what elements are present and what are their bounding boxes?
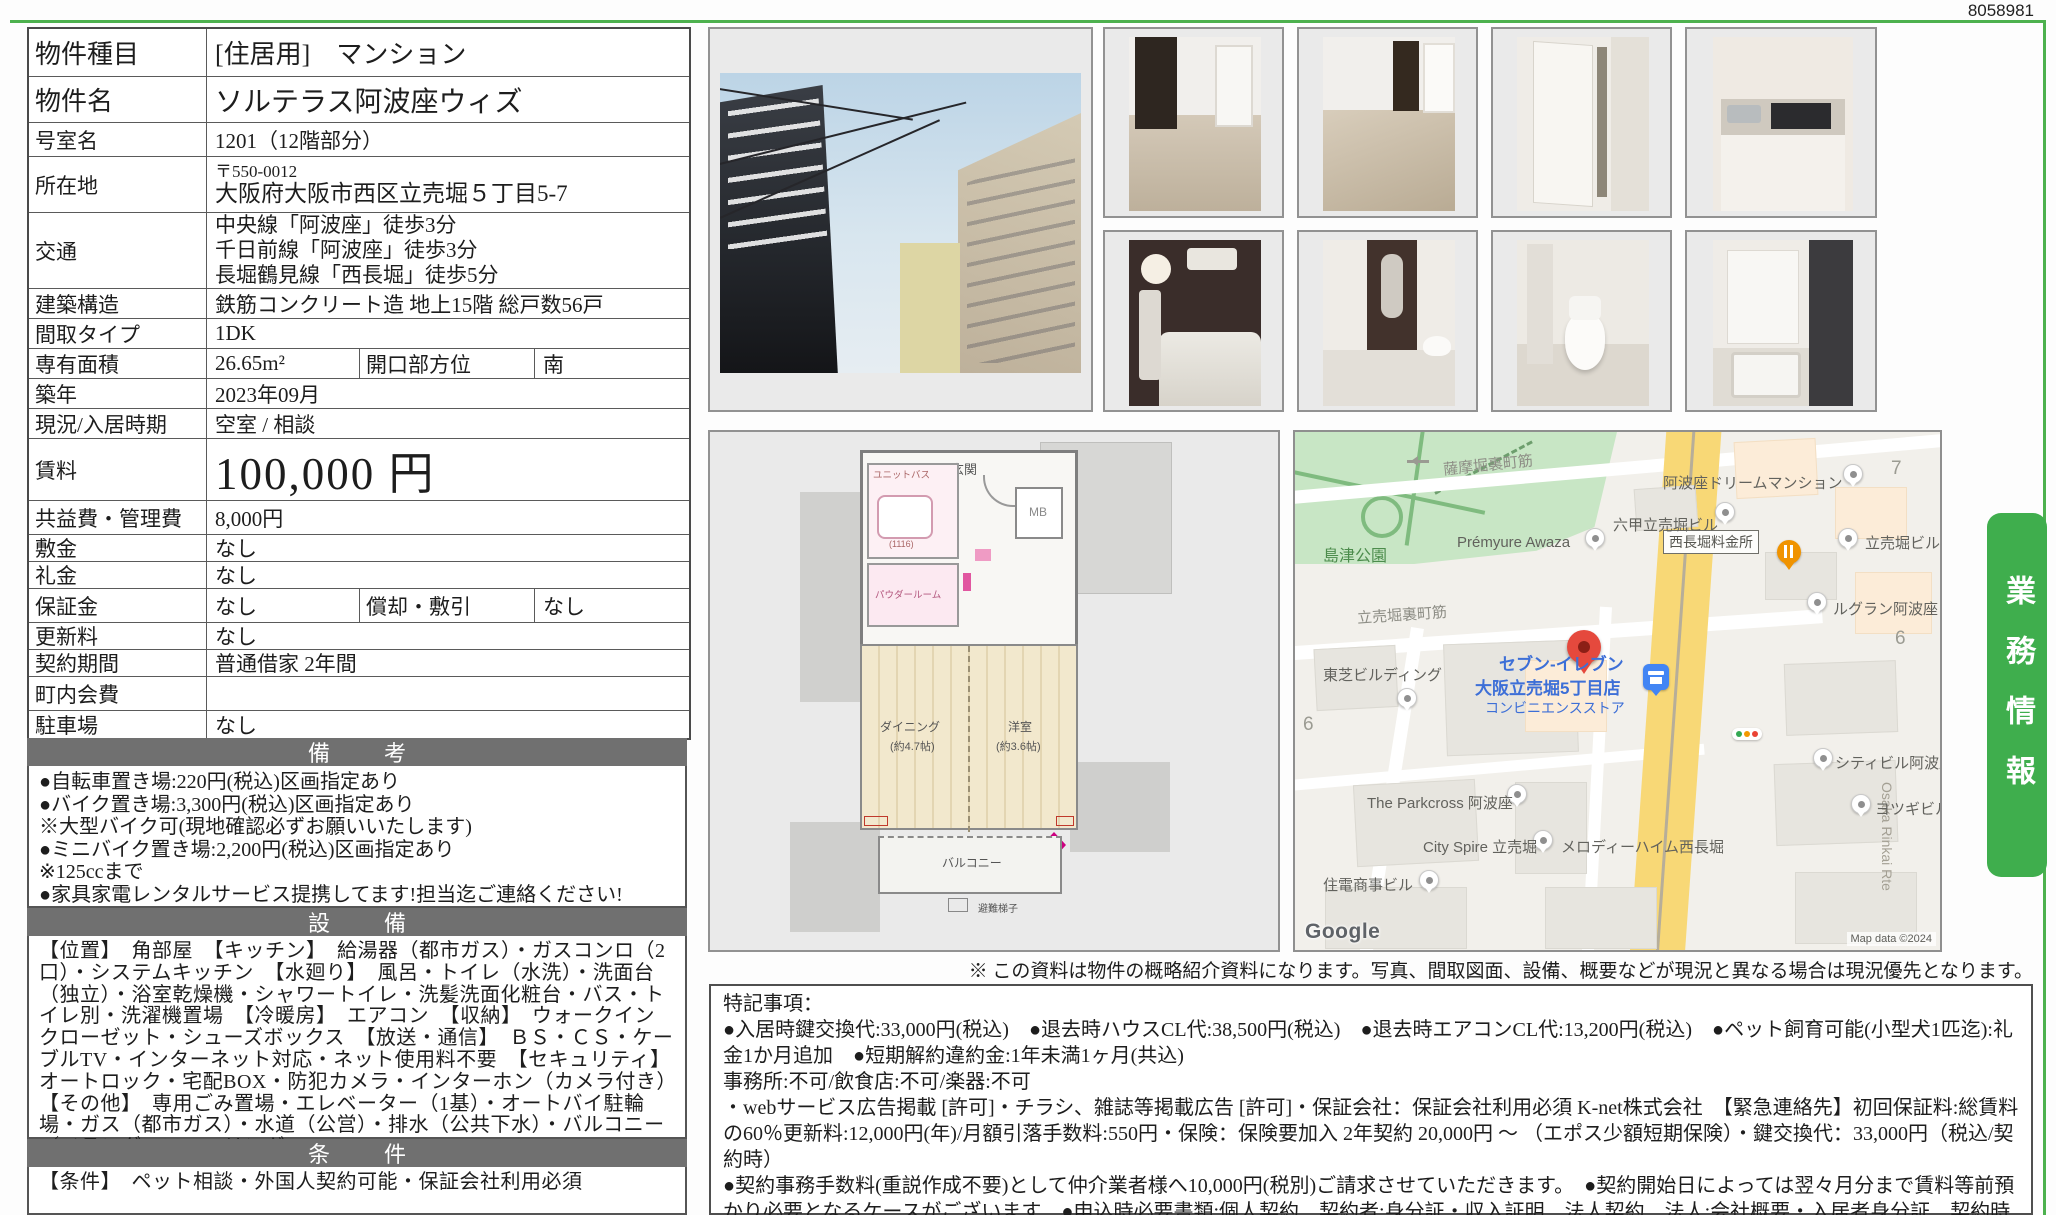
traffic-light-green <box>1736 731 1742 737</box>
park-circle <box>1361 496 1403 538</box>
row-value: 8,000円 <box>207 501 689 534</box>
row-label: 契約期間 <box>29 650 207 676</box>
poi-label: 住電商事ビル <box>1323 874 1413 895</box>
traffic-light-icon <box>1732 728 1762 740</box>
interior-photo-washroom <box>1297 230 1478 412</box>
row-value: 1201（12階部分） <box>207 123 689 156</box>
table-row: 共益費・管理費 8,000円 <box>29 501 689 535</box>
poi-pin-icon <box>1851 794 1871 814</box>
special-notes-paragraph: ・webサービス広告掲載 [許可]・チラシ、雑誌等掲載広告 [許可]・保証会社：… <box>723 1095 2019 1173</box>
dark-doorway <box>1393 41 1419 111</box>
poi-label: 立売堀ビル <box>1865 532 1940 553</box>
row-label: 現況/入居時期 <box>29 409 207 438</box>
special-notes-title: 特記事項： <box>723 991 2019 1017</box>
row-value: なし <box>207 535 689 561</box>
tab-business-info[interactable]: 業務情報 <box>1987 513 2047 877</box>
table-row: 間取タイプ 1DK <box>29 319 689 349</box>
poi-pin-icon <box>1838 528 1858 548</box>
interior-photo-toilet <box>1491 230 1672 412</box>
marker-box <box>864 816 888 826</box>
row-label: 町内会費 <box>29 677 207 710</box>
row-label: 建築構造 <box>29 289 207 318</box>
table-row: 所在地 〒550-0012 大阪府大阪市西区立売堀５丁目5-7 <box>29 157 689 213</box>
property-sheet: 8058981 業務情報 物件種目 [住居用] マンション 物件名 ソルテラス阿… <box>0 0 2056 1215</box>
table-row: 物件種目 [住居用] マンション <box>29 29 689 77</box>
unit-bath: ユニットバス (1116) <box>867 463 959 559</box>
dark-corner <box>1809 240 1853 406</box>
row-value: 空室 / 相談 <box>207 409 689 438</box>
bath-mirror <box>1139 290 1161 380</box>
row-label: 専有面積 <box>29 349 207 378</box>
rent-amount: 100,000 円 <box>207 439 689 500</box>
frame-line-top <box>10 20 2046 23</box>
special-notes-paragraph: ●契約事務手数料(重説作成不要)として仲介業者様へ10,000円(税別)ご請求さ… <box>723 1173 2019 1215</box>
row-value: 1DK <box>207 319 689 348</box>
row-label: 敷金 <box>29 535 207 561</box>
poi-pin-icon <box>1419 870 1439 890</box>
table-row: 建築構造 鉄筋コンクリート造 地上15階 総戸数56戸 <box>29 289 689 319</box>
arrow-head <box>1406 456 1418 466</box>
table-row: 礼金 なし <box>29 562 689 589</box>
closet-door <box>1533 41 1593 207</box>
interior-photo-image <box>1517 240 1649 406</box>
marker-box <box>1056 816 1074 826</box>
floor-plan-label-balcony: バルコニー <box>942 854 1002 871</box>
poi-label: City Spire 立売堀 <box>1423 836 1537 857</box>
powder-room: パウダールーム <box>867 563 959 627</box>
row-label: 駐車場 <box>29 711 207 738</box>
traffic-light-yellow <box>1744 731 1750 737</box>
floor <box>1323 350 1455 406</box>
interior-photo-bathroom <box>1103 230 1284 412</box>
block-number: 6 <box>1303 714 1314 736</box>
row-label: 交通 <box>29 213 207 288</box>
poi-label: 阿波座ドリームマンション <box>1663 472 1843 493</box>
building-core <box>1070 762 1170 852</box>
closet-interior <box>1611 37 1649 211</box>
remarks-line: ●バイク置き場:3,300円(税込)区画指定あり <box>39 794 675 817</box>
table-row: 賃料 100,000 円 <box>29 439 689 501</box>
interior-photo-image <box>1129 37 1261 211</box>
interior-photo-kitchen <box>1685 27 1877 218</box>
row-value-2: 南 <box>535 349 689 378</box>
table-row: 築年 2023年09月 <box>29 379 689 409</box>
map-building <box>1765 552 1837 600</box>
interior-photo-image <box>1323 240 1455 406</box>
interior-photo-hallway <box>1103 27 1284 218</box>
pin-tip <box>1651 690 1661 701</box>
poi-pin-icon <box>1807 592 1827 612</box>
poi-label: ルグラン阿波座 <box>1833 598 1938 619</box>
poi-pin-icon <box>1843 464 1863 484</box>
building-core <box>800 492 860 702</box>
row-value: 2023年09月 <box>207 379 689 408</box>
tower-balconies <box>728 89 828 249</box>
interior-photo-laundry <box>1685 230 1877 412</box>
equipment-box: 【位置】 角部屋 【キッチン】 給湯器（都市ガス）・ガスコンロ（2口）・システム… <box>27 936 687 1139</box>
street-label: 立売堀裏町筋 <box>1356 601 1447 628</box>
row-label: 号室名 <box>29 123 207 156</box>
floor-plan-label-powder: パウダールーム <box>875 587 941 601</box>
pin-tip <box>1784 563 1794 575</box>
store-icon <box>1643 664 1669 690</box>
building-photo <box>708 27 1093 412</box>
property-name: ソルテラス阿波座ウィズ <box>207 77 689 122</box>
special-notes-paragraph: ●入居時鍵交換代:33,000円(税込) ●退去時ハウスCL代:38,500円(… <box>723 1017 2019 1069</box>
restaurant-pin-icon <box>1777 540 1801 564</box>
wood-floor <box>1323 110 1455 211</box>
map: 島津公園 薩摩堀裏町筋 <box>1293 430 1942 952</box>
transit-line: 長堀鶴見線「西長堀」徒歩5分 <box>215 263 499 288</box>
interior-photo-image <box>1323 37 1455 211</box>
table-row: 物件名 ソルテラス阿波座ウィズ <box>29 77 689 123</box>
row-label: 共益費・管理費 <box>29 501 207 534</box>
wall-panel <box>1527 244 1553 364</box>
floor-plan-label-ladder: 避難梯子 <box>978 900 1018 915</box>
closet-shadow <box>1597 47 1607 197</box>
building-photo-image <box>720 73 1081 373</box>
address: 大阪府大阪市西区立売堀５丁目5-7 <box>215 181 568 207</box>
kitchen-sink <box>1727 105 1761 123</box>
row-value: 鉄筋コンクリート造 地上15階 総戸数56戸 <box>207 289 689 318</box>
floor-plan-label-mb: MB <box>1029 505 1047 519</box>
traffic-light-red <box>1752 731 1758 737</box>
floor-plan-label-dining: ダイニング <box>880 718 940 735</box>
row-value: なし <box>207 711 689 738</box>
table-row: 現況/入居時期 空室 / 相談 <box>29 409 689 439</box>
interior-photo-closet <box>1491 27 1672 218</box>
poi-pin-icon <box>1585 528 1605 548</box>
table-row: 契約期間 普通借家 2年間 <box>29 650 689 677</box>
poi-label: ヨツギビル <box>1875 798 1942 819</box>
door-arc <box>983 475 1015 507</box>
floor-plan-label-bedroom: 洋室 <box>1008 718 1032 735</box>
row-label: 間取タイプ <box>29 319 207 348</box>
store-label: コンビニエンスストア <box>1485 698 1625 718</box>
interior-photo-room <box>1297 27 1478 218</box>
floor-plan: 玄関 MB ユニットバス (1116) パウダールーム ダイニング (約4.7帖 <box>708 430 1280 952</box>
poi-pin-icon <box>1813 748 1833 768</box>
special-notes-paragraph: 事務所:不可/飲食店:不可/楽器:不可 <box>723 1069 2019 1095</box>
row-value <box>207 677 689 710</box>
row-label: 物件名 <box>29 77 207 122</box>
washer-pan <box>1731 352 1801 398</box>
disclaimer-note: ※ この資料は物件の概略紹介資料になります。写真、間取図面、設備、概要などが現況… <box>709 956 2033 983</box>
tab-business-info-label: 業務情報 <box>1995 575 2039 815</box>
fork-glyph <box>1784 545 1787 558</box>
poi-label: シティビル阿波座 <box>1835 752 1942 773</box>
vent-panel <box>1187 248 1237 270</box>
sink-bowl <box>1423 336 1451 356</box>
store-label: 大阪立売堀5丁目店 <box>1475 674 1620 699</box>
table-row: 号室名 1201（12階部分） <box>29 123 689 157</box>
poi-label: メロディーハイム西長堀 <box>1561 836 1724 857</box>
door <box>1727 250 1799 344</box>
toilet-tank <box>1569 296 1601 320</box>
meter-box: MB <box>1015 487 1063 539</box>
wood-floor <box>1129 115 1261 211</box>
postal-code: 〒550-0012 <box>215 162 297 181</box>
conditions-text: 【条件】 ペット相談・外国人契約可能・保証会社利用必須 <box>39 1172 675 1194</box>
remarks-line: ※大型バイク可(現地確認必ずお願いいたします) <box>39 816 675 839</box>
building-shape <box>900 243 960 373</box>
row-label: 賃料 <box>29 439 207 500</box>
interior-photo-image <box>1517 37 1649 211</box>
remarks-line: ●家具家電レンタルサービス提携してます!担当迄ご連絡ください! <box>39 884 675 907</box>
remarks-line: ●自転車置き場:220円(税込)区画指定あり <box>39 771 675 794</box>
ladder-symbol <box>948 898 968 912</box>
row-value: なし <box>207 623 689 649</box>
floor-plan-label-unit-bath: ユニットバス <box>873 467 930 481</box>
row-value: 普通借家 2年間 <box>207 650 689 676</box>
bathtub-symbol <box>877 495 933 539</box>
park-label: 島津公園 <box>1323 542 1387 566</box>
row-value: 〒550-0012 大阪府大阪市西区立売堀５丁目5-7 <box>207 157 689 212</box>
row-label: 所在地 <box>29 157 207 212</box>
row-value: 26.65m² <box>207 349 359 378</box>
fixture-pink <box>975 549 991 561</box>
cooktop <box>1771 103 1831 129</box>
poi-label: The Parkcross 阿波座 <box>1367 792 1513 813</box>
row-value: [住居用] マンション <box>207 29 689 76</box>
block-number: 6 <box>1895 628 1906 650</box>
table-row: 保証金 なし 償却・敷引 なし <box>29 589 689 623</box>
bathtub <box>1159 332 1261 406</box>
special-notes-box: 特記事項： ●入居時鍵交換代:33,000円(税込) ●退去時ハウスCL代:38… <box>709 984 2033 1215</box>
google-logo: Google <box>1305 920 1380 944</box>
table-row: 敷金 なし <box>29 535 689 562</box>
poi-label: Prémyure Awaza <box>1457 534 1570 551</box>
balcony: バルコニー <box>878 836 1062 894</box>
building-core <box>790 822 880 932</box>
poi-pin-icon <box>1397 688 1417 708</box>
toilet-bowl <box>1565 314 1605 370</box>
store-awning <box>1648 671 1664 675</box>
table-row: 町内会費 <box>29 677 689 711</box>
remarks-box: ●自転車置き場:220円(税込)区画指定あり ●バイク置き場:3,300円(税込… <box>27 766 687 908</box>
store-body <box>1650 677 1662 684</box>
transit-line: 千日前線「阿波座」徒歩3分 <box>215 238 478 263</box>
row-value-2: なし <box>535 589 689 622</box>
knife-glyph <box>1790 545 1793 558</box>
poi-label: 東芝ビルディング <box>1323 664 1442 685</box>
section-header-conditions: 条 件 <box>27 1139 687 1167</box>
block-number: 7 <box>1891 458 1902 480</box>
mirror <box>1381 254 1403 318</box>
table-row: 専有面積 26.65m² 開口部方位 南 <box>29 349 689 379</box>
row-label: 築年 <box>29 379 207 408</box>
kitchen-cabinet <box>1721 132 1845 211</box>
row-value: なし <box>207 589 359 622</box>
property-table: 物件種目 [住居用] マンション 物件名 ソルテラス阿波座ウィズ 号室名 120… <box>27 27 691 740</box>
store-label: セブン-イレブン <box>1499 650 1624 675</box>
room-divider <box>968 646 970 832</box>
remarks-line: ※125ccまで <box>39 861 675 884</box>
row-label: 礼金 <box>29 562 207 588</box>
row-label-2: 償却・敷引 <box>359 589 535 622</box>
row-label: 更新料 <box>29 623 207 649</box>
floor-plan-label-dining-size: (約4.7帖) <box>890 738 935 754</box>
interior-photo-image <box>1713 37 1853 211</box>
section-header-remarks: 備 考 <box>27 738 687 766</box>
door <box>1423 43 1455 113</box>
poi-label: 六甲立売堀ビル <box>1613 514 1718 535</box>
dark-doorway <box>1135 37 1177 129</box>
section-header-equipment: 設 備 <box>27 908 687 936</box>
row-label-2: 開口部方位 <box>359 349 535 378</box>
remarks-line: ●ミニバイク置き場:2,200円(税込)区画指定あり <box>39 839 675 862</box>
equipment-text: 【位置】 角部屋 【キッチン】 給湯器（都市ガス）・ガスコンロ（2口）・システム… <box>39 941 675 1159</box>
floor-plan-label-bedroom-size: (約3.6帖) <box>996 738 1041 754</box>
main-rooms: ダイニング (約4.7帖) 洋室 (約3.6帖) <box>860 644 1078 830</box>
conditions-box: 【条件】 ペット相談・外国人契約可能・保証会社利用必須 <box>27 1167 687 1215</box>
table-row: 交通 中央線「阿波座」徒歩3分 千日前線「阿波座」徒歩3分 長堀鶴見線「西長堀」… <box>29 213 689 289</box>
row-value: なし <box>207 562 689 588</box>
transit-line: 中央線「阿波座」徒歩3分 <box>215 213 457 238</box>
row-label: 保証金 <box>29 589 207 622</box>
row-label: 物件種目 <box>29 29 207 76</box>
interior-photo-image <box>1713 240 1853 406</box>
fixture-pink <box>963 573 971 591</box>
floor-plan-label-unit-bath-size: (1116) <box>889 539 914 549</box>
map-building <box>1784 660 1898 736</box>
map-copyright: Map data ©2024 <box>1847 932 1937 946</box>
document-number: 8058981 <box>1968 1 2034 21</box>
bathroom-light <box>1141 254 1171 284</box>
row-value: 中央線「阿波座」徒歩3分 千日前線「阿波座」徒歩3分 長堀鶴見線「西長堀」徒歩5… <box>207 213 689 288</box>
arrow-left-icon <box>1407 460 1429 463</box>
table-row: 駐車場 なし <box>29 711 689 738</box>
map-building <box>1545 887 1657 949</box>
table-row: 更新料 なし <box>29 623 689 650</box>
interior-photo-image <box>1129 240 1261 406</box>
door <box>1215 45 1253 127</box>
